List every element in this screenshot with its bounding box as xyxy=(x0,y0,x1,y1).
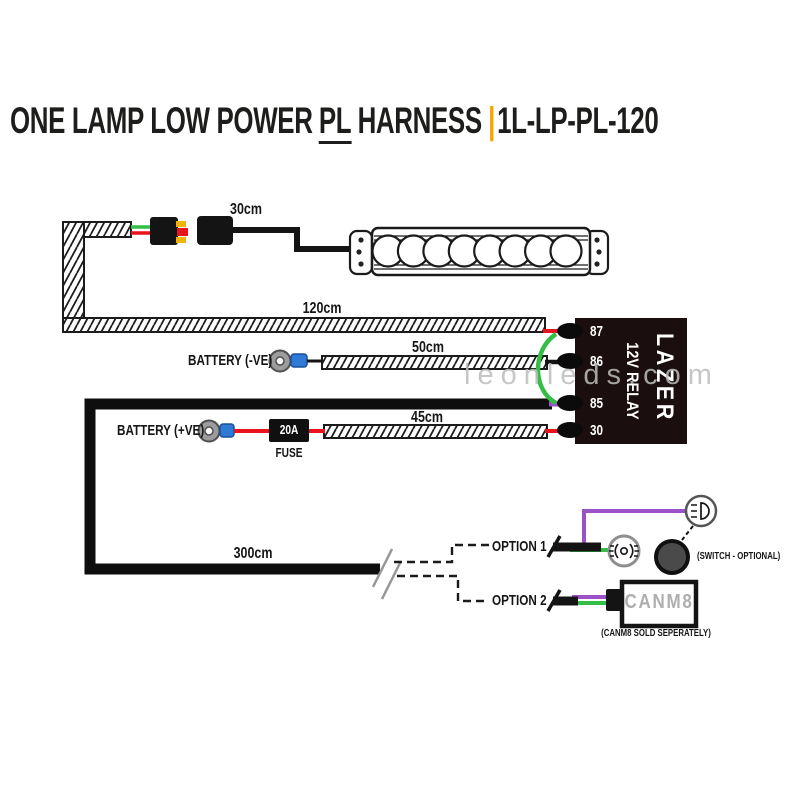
battery-positive-assembly xyxy=(199,419,326,442)
canm8-label: CANM8 xyxy=(625,591,694,614)
label-battery-positive: BATTERY (+VE) xyxy=(117,423,204,438)
option1-label: OPTION 1 xyxy=(492,539,547,554)
title-part1: ONE LAMP LOW POWER xyxy=(10,100,313,141)
product-diagram-page: ONE LAMP LOW POWERPLHARNESS|1L-LP-PL-120 xyxy=(0,0,800,800)
canm8-connector xyxy=(606,589,622,611)
label-50cm: 50cm xyxy=(412,340,444,356)
lamp-connector-assembly xyxy=(131,216,352,249)
braid-vertical xyxy=(63,222,84,332)
canm8-sold-separately-note: (CANM8 SOLD SEPERATELY) xyxy=(601,629,711,639)
option2-label: OPTION 2 xyxy=(492,593,547,608)
braid-120cm xyxy=(63,318,545,332)
relay-terminal-87: 87 xyxy=(590,324,603,339)
connector-tab-yellow-top xyxy=(176,221,186,227)
connector-socket xyxy=(197,216,233,245)
watermark: leonleds.com xyxy=(464,359,719,392)
title-part-number: 1L-LP-PL-120 xyxy=(497,100,658,141)
braid-45cm xyxy=(324,425,547,438)
label-45cm: 45cm xyxy=(411,410,443,426)
page-title: ONE LAMP LOW POWERPLHARNESS|1L-LP-PL-120 xyxy=(10,100,658,142)
label-battery-negative: BATTERY (-VE) xyxy=(188,353,272,368)
connector-tab-yellow-bottom xyxy=(176,237,186,243)
title-separator-bar: | xyxy=(488,100,495,141)
label-30cm: 30cm xyxy=(230,202,262,218)
switch-dashed-link xyxy=(682,526,693,540)
connector-plug xyxy=(150,217,178,245)
title-part2: HARNESS xyxy=(358,100,482,141)
dashed-link-option1 xyxy=(394,545,489,562)
option-dashed-links xyxy=(394,545,489,601)
crimp-sleeve-blue-pos xyxy=(220,424,234,437)
ring-terminal-pos-hole xyxy=(205,427,213,435)
fuse-rating-label: 20A xyxy=(280,423,299,436)
connector-tab-red xyxy=(177,228,188,236)
option1-assembly xyxy=(548,496,716,573)
title-underlined-pl: PL xyxy=(319,100,351,144)
battery-negative-assembly xyxy=(270,351,323,372)
label-300cm: 300cm xyxy=(234,546,273,562)
fuse-label: FUSE xyxy=(275,446,302,459)
switch-optional-note: (SWITCH - OPTIONAL) xyxy=(697,552,780,562)
relay-terminal-85: 85 xyxy=(590,396,603,411)
dashed-link-option2 xyxy=(397,576,489,601)
relay-terminal-30: 30 xyxy=(590,423,603,438)
wire-30cm xyxy=(233,230,352,249)
switch-button xyxy=(656,541,688,573)
led-light-bar xyxy=(350,228,608,275)
ring-terminal-neg-hole xyxy=(276,357,284,365)
label-120cm: 120cm xyxy=(303,301,342,317)
crimp-sleeve-blue-neg xyxy=(291,354,307,367)
